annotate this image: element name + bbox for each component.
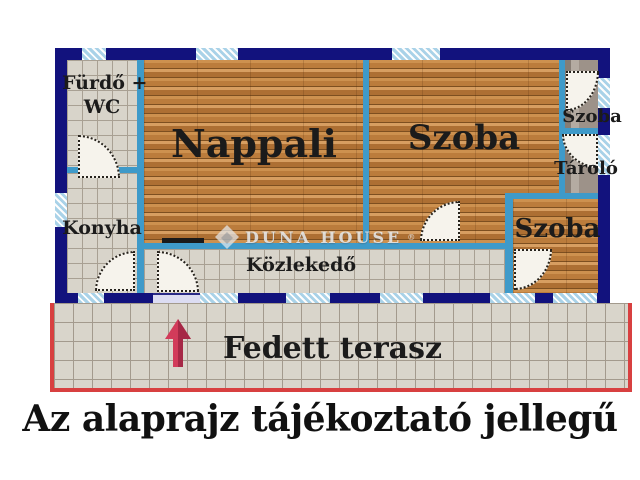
room-label-furdo-line2: WC xyxy=(62,96,142,120)
window-top-1 xyxy=(82,48,106,60)
room-label-kozlekedo: Közlekedő xyxy=(246,254,351,278)
room-label-szoba-nagy: Szoba xyxy=(369,117,559,160)
window-right-1 xyxy=(598,78,610,108)
wall-szoba-also-top xyxy=(505,193,598,199)
window-top-3 xyxy=(392,48,440,60)
disclaimer-caption: Az alaprajz tájékoztató jellegű xyxy=(0,398,640,440)
wall-kozlekedo-top xyxy=(144,243,505,249)
room-label-konyha: Konyha xyxy=(62,217,142,241)
terrace-label: Fedett terasz xyxy=(220,330,445,368)
nappali-opening-mark xyxy=(162,238,204,243)
room-label-nappali: Nappali xyxy=(144,120,364,168)
room-label-furdo-line1: Fürdő + xyxy=(62,72,142,96)
room-label-furdo: Fürdő + WC xyxy=(62,72,142,120)
room-label-tarolo: Tároló xyxy=(546,158,626,181)
floor-plan-image: Fürdő + WC Konyha Nappali Szoba Szoba Tá… xyxy=(0,0,640,480)
entrance-arrow-icon xyxy=(164,319,192,369)
window-top-2 xyxy=(196,48,238,60)
room-label-szoba-kis: Szoba xyxy=(552,106,632,129)
room-label-szoba-also: Szoba xyxy=(505,213,610,246)
